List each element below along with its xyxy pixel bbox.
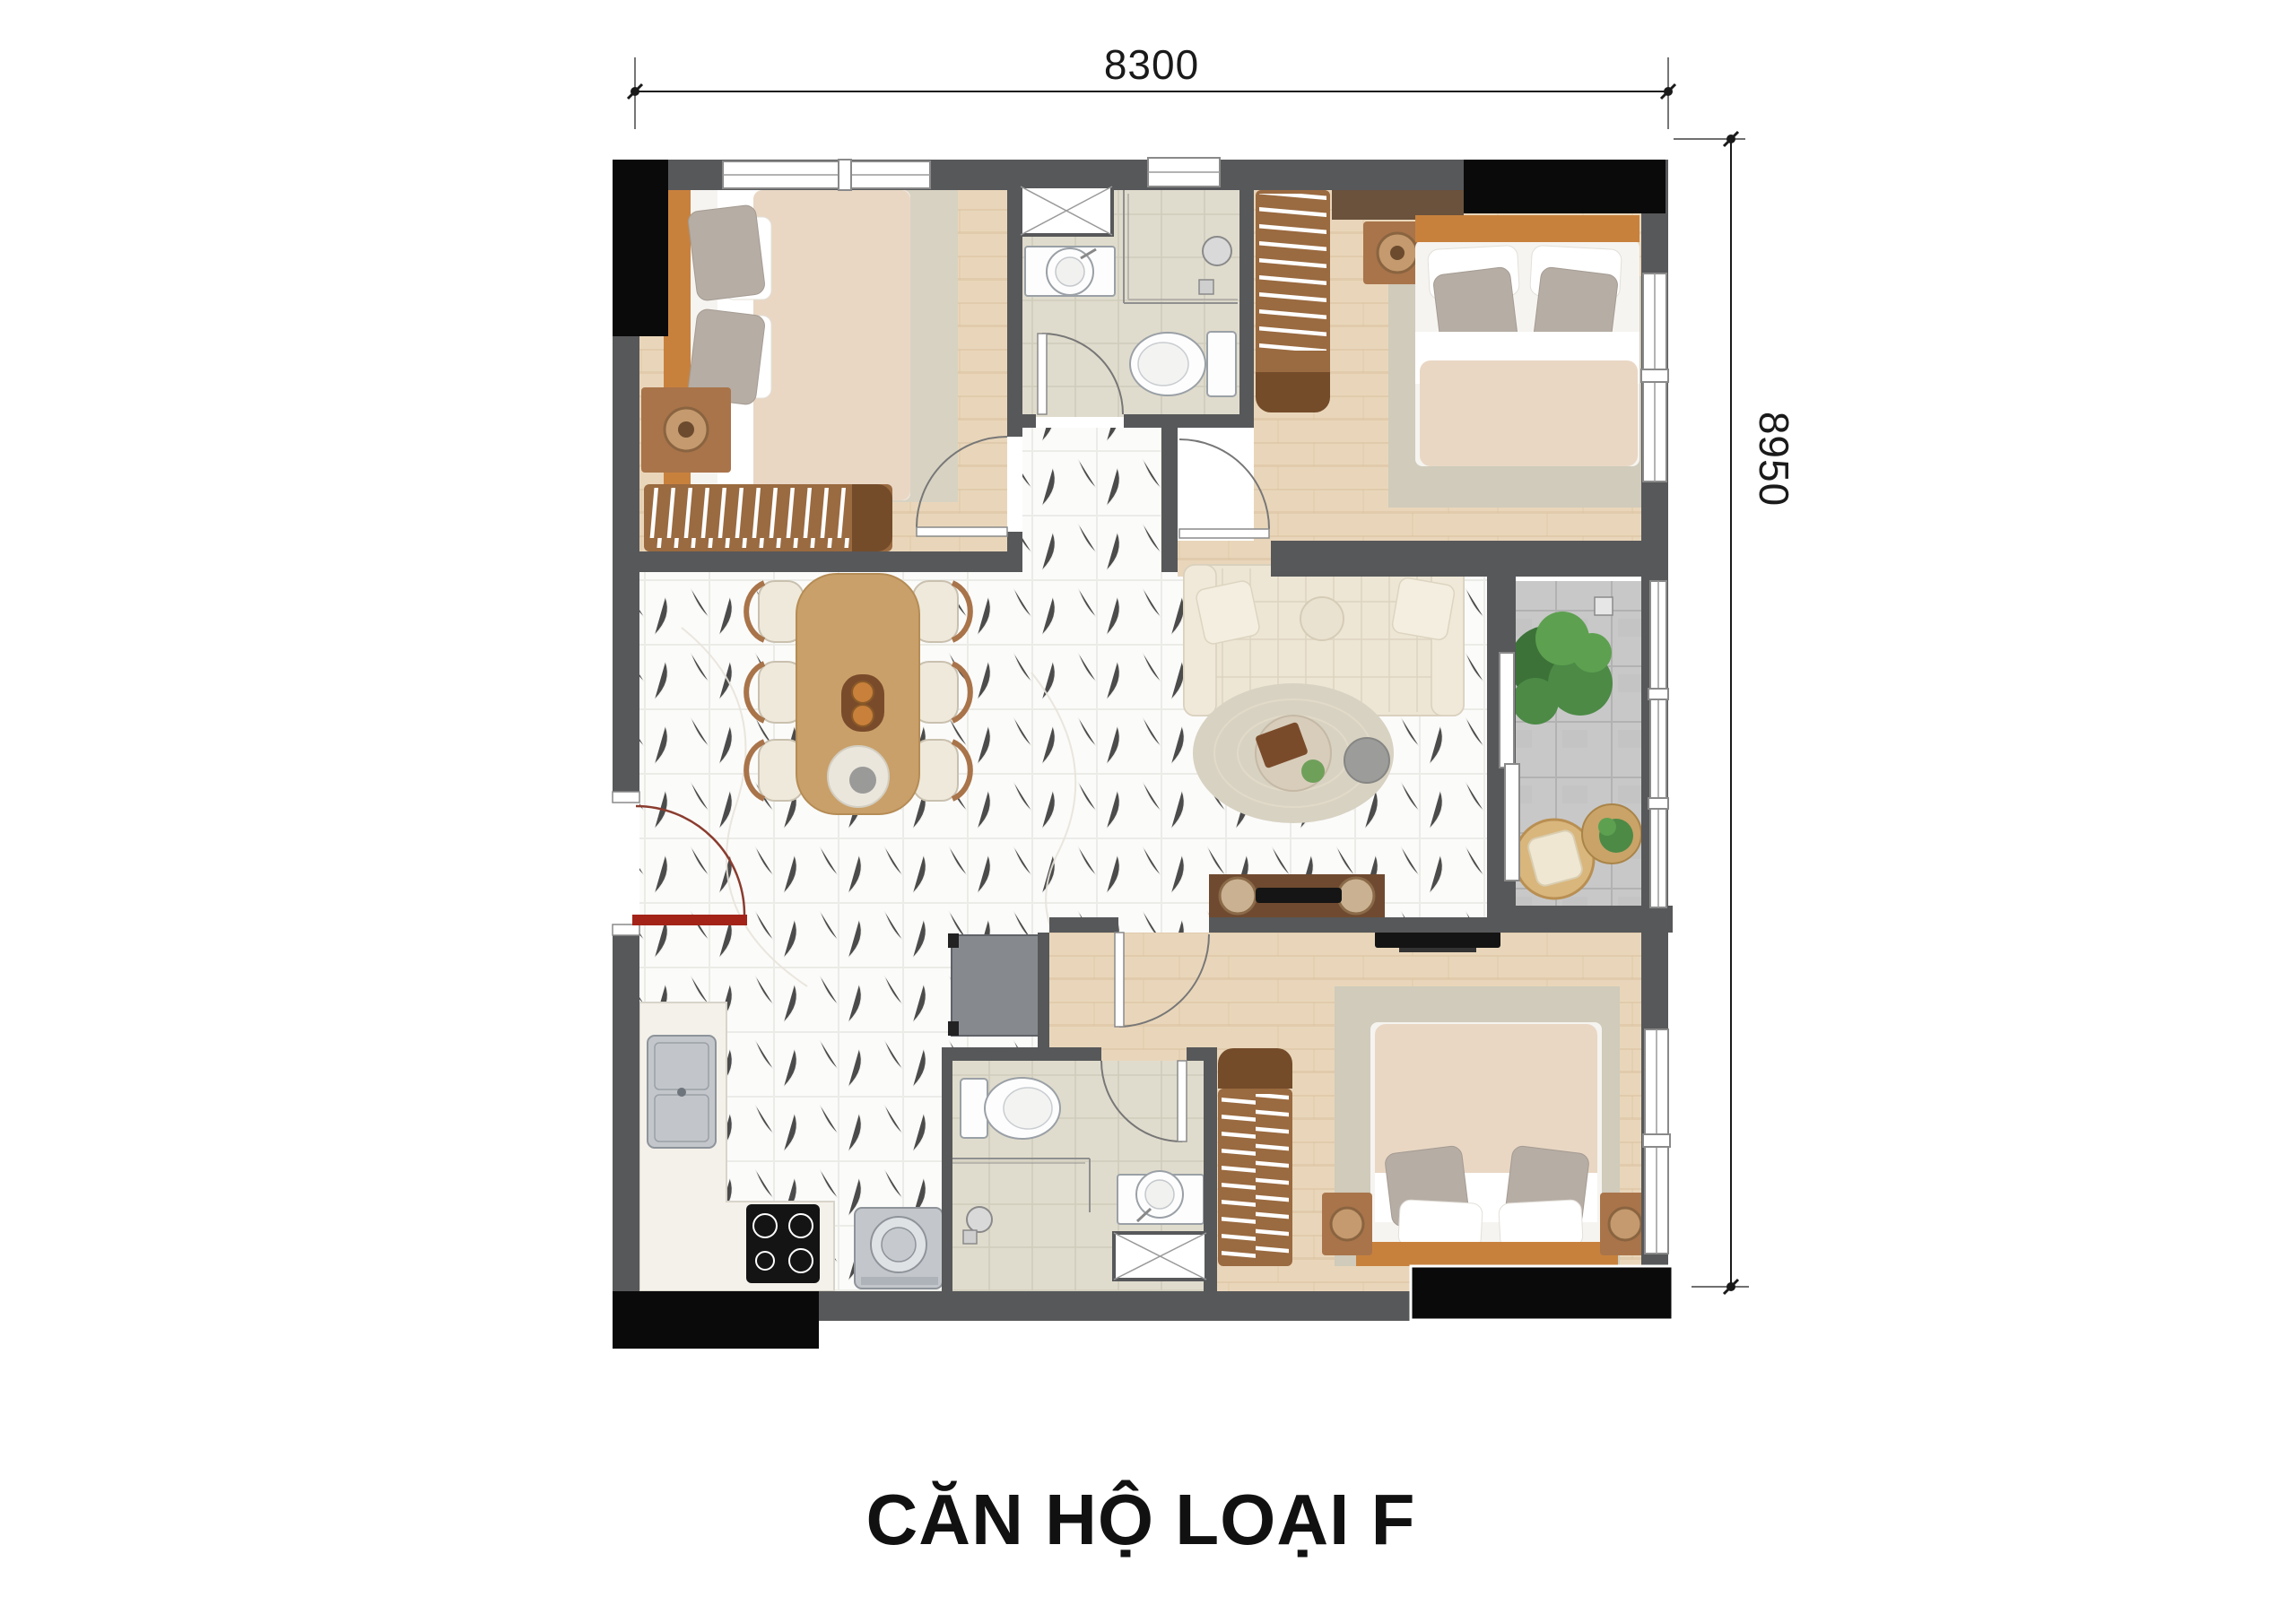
- round-bolster: [1300, 597, 1344, 640]
- dimension-top: 8300: [628, 41, 1675, 129]
- door-leaf: [917, 527, 1007, 536]
- washbasin: [1118, 1171, 1204, 1224]
- plate-cover-icon: [849, 767, 876, 794]
- shaft-column-black: [1411, 1266, 1673, 1320]
- bed-headboard: [1356, 1242, 1618, 1266]
- bench-slats: [648, 488, 854, 548]
- window-bathroom1: [1148, 158, 1220, 187]
- floor-drain-icon: [1199, 280, 1213, 294]
- tv-console: [1209, 874, 1385, 917]
- toilet-bowl: [1004, 1088, 1052, 1129]
- bed-duvet: [753, 190, 910, 500]
- bed-headboard: [1415, 215, 1639, 242]
- balcony-glazing: [1648, 581, 1668, 907]
- round-side-table: [1582, 804, 1641, 864]
- tv-shelf: [1399, 948, 1476, 952]
- wall-fridge-nook: [1038, 933, 1049, 1049]
- sofa-pillow: [1195, 579, 1261, 646]
- shaft-column-black: [1464, 160, 1665, 213]
- door-leaf: [1038, 334, 1047, 414]
- dimension-width-label: 8300: [1104, 41, 1199, 88]
- tv-icon: [1256, 888, 1342, 903]
- wall-bedroom2-south: [1271, 541, 1668, 577]
- window-bedroom2: [1641, 273, 1668, 482]
- technical-shaft-hatch: [1114, 1233, 1206, 1280]
- fridge-hinge: [948, 1021, 959, 1036]
- pillow: [687, 204, 766, 302]
- door-jamb: [613, 792, 639, 803]
- bedroom-1: [641, 187, 958, 551]
- double-sink: [648, 1036, 716, 1148]
- basin: [1056, 257, 1084, 286]
- door-leaf: [1179, 529, 1269, 538]
- washing-machine: [855, 1208, 943, 1289]
- floor-plan-page: 8300 8950 CĂN HỘ LOẠI F: [0, 0, 2296, 1623]
- wall-bedroom1-south: [639, 551, 1022, 572]
- wall-bedroom3-north: [1049, 917, 1118, 933]
- refrigerator: [948, 933, 1039, 1036]
- toilet-tank: [1207, 332, 1236, 396]
- bench-slats: [1222, 1094, 1289, 1261]
- door-leaf: [1115, 933, 1124, 1027]
- washbasin: [1025, 247, 1115, 296]
- lamp-icon: [678, 421, 694, 438]
- bench-slats: [1259, 194, 1326, 351]
- speaker-icon: [1338, 878, 1374, 914]
- toilet: [961, 1078, 1060, 1139]
- plan-title: CĂN HỘ LOẠI F: [866, 1480, 1416, 1559]
- slatted-bench: [1218, 1048, 1292, 1266]
- floor-drain-icon: [963, 1230, 977, 1244]
- lamp-icon: [1609, 1208, 1641, 1240]
- floor-plan-canvas: 8300 8950 CĂN HỘ LOẠI F: [0, 0, 2296, 1623]
- dimension-right: 8950: [1674, 132, 1797, 1294]
- shower-head-icon: [967, 1207, 992, 1232]
- dimension-height-label: 8950: [1751, 412, 1797, 507]
- wall-bathroom1-south: [1012, 414, 1036, 428]
- floor-drain-icon: [1595, 597, 1613, 615]
- sofa-pillow: [1391, 577, 1456, 641]
- wall-bathroom2-north: [942, 1047, 1101, 1061]
- wall-hall-east: [1161, 426, 1178, 572]
- side-table: [1344, 738, 1389, 783]
- technical-shaft-hatch: [1021, 187, 1112, 235]
- toilet-bowl: [1138, 343, 1188, 386]
- window-bedroom3: [1643, 1029, 1670, 1254]
- nightstand: [1322, 1193, 1372, 1255]
- bed-duvet: [1420, 360, 1638, 466]
- wall-bathroom2-west: [942, 1047, 952, 1293]
- wall-bathroom1-east: [1239, 187, 1254, 428]
- shaft-column-black: [613, 160, 668, 336]
- bench-cap: [1218, 1048, 1292, 1089]
- toilet-tank: [961, 1079, 987, 1138]
- lamp-icon: [1331, 1208, 1363, 1240]
- fridge-hinge: [948, 933, 959, 948]
- dining-set: [746, 574, 970, 814]
- faucet-icon: [677, 1088, 686, 1097]
- wall-bedroom3-north: [1209, 917, 1487, 933]
- slatted-bench: [644, 484, 892, 551]
- wall-left-lower: [613, 926, 639, 1321]
- double-bed: [1415, 215, 1639, 466]
- speaker-icon: [1220, 878, 1256, 914]
- cup-icon: [852, 681, 874, 703]
- wall-tv-icon: [1375, 931, 1500, 948]
- wall-bathroom1-south: [1124, 414, 1254, 428]
- window-bedroom1: [723, 160, 930, 190]
- induction-hob: [746, 1204, 820, 1283]
- basin: [1145, 1180, 1174, 1209]
- slatted-bench: [1256, 190, 1330, 412]
- double-bed: [1356, 1022, 1618, 1266]
- door-leaf: [1178, 1061, 1187, 1141]
- small-plant-icon: [1301, 759, 1325, 783]
- toilet: [1130, 332, 1236, 396]
- bench-cap: [1256, 372, 1330, 412]
- shaft-column-black: [613, 1291, 819, 1349]
- nightstand: [641, 387, 731, 473]
- cup-icon: [852, 705, 874, 726]
- wall-balcony-south: [1487, 906, 1673, 933]
- bench-cap: [852, 484, 892, 551]
- lamp-icon: [1390, 246, 1405, 260]
- hall-niche-floor: [1022, 428, 1161, 558]
- coffee-corner: [1193, 683, 1394, 823]
- door-jamb: [613, 924, 639, 935]
- shower-head-icon: [1203, 237, 1231, 265]
- door-leaf: [632, 915, 747, 925]
